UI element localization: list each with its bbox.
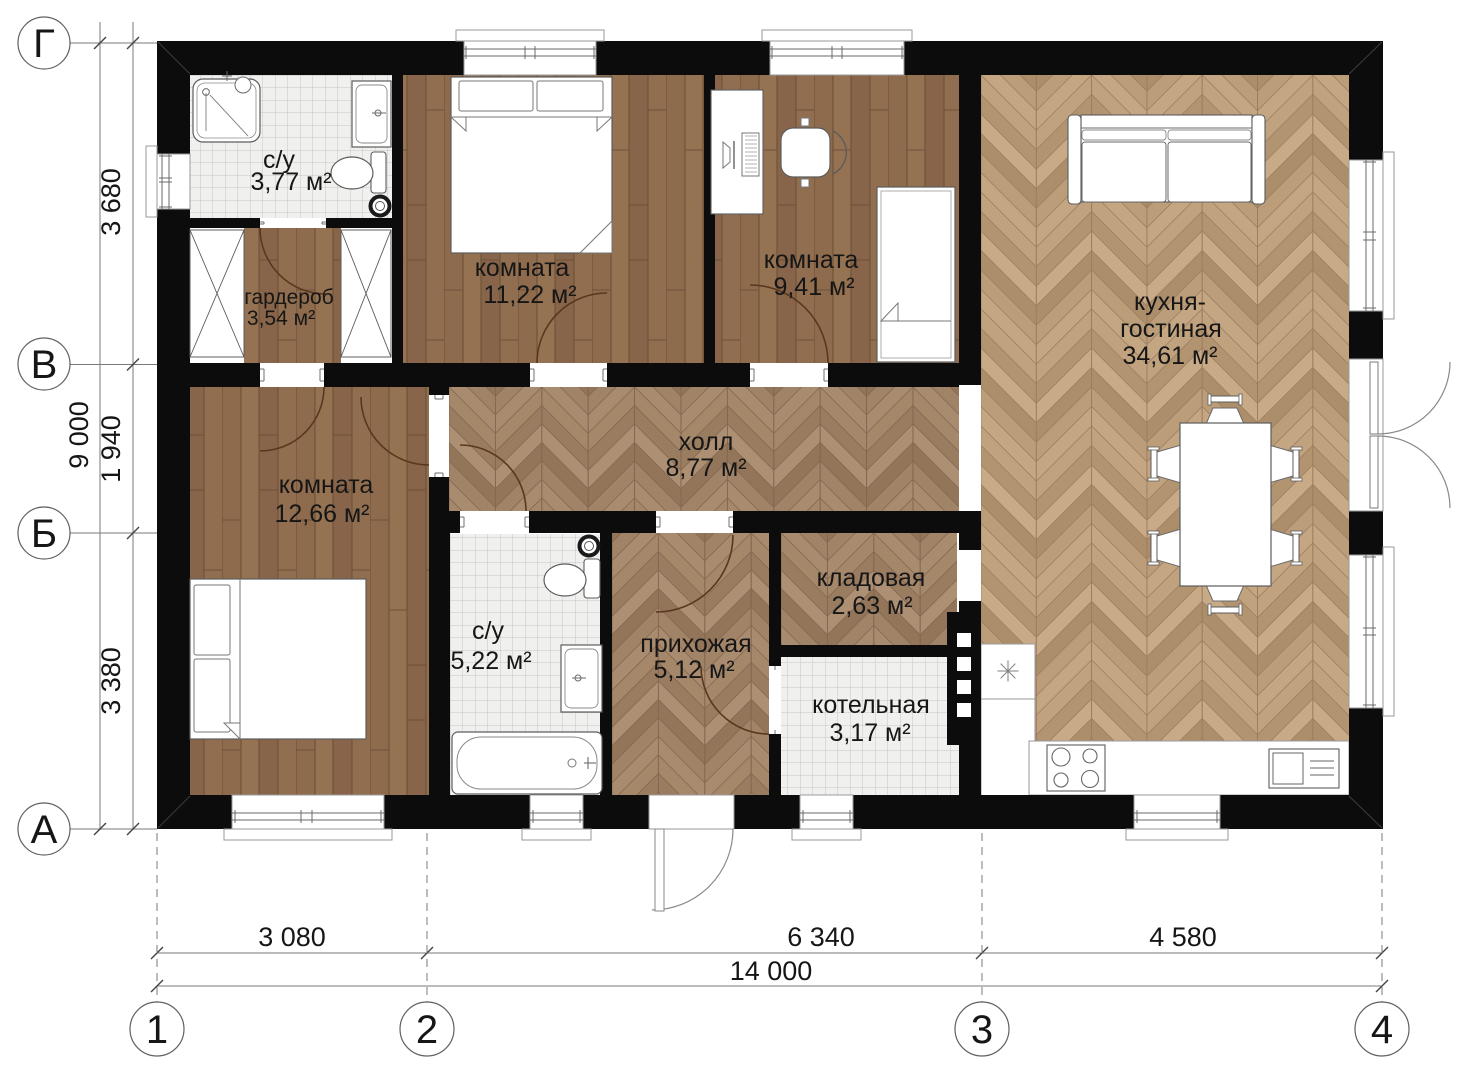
svg-text:34,61 м²: 34,61 м² bbox=[1122, 342, 1217, 370]
svg-text:3 380: 3 380 bbox=[96, 647, 126, 715]
svg-text:12,66 м²: 12,66 м² bbox=[274, 500, 369, 528]
svg-text:2,63 м²: 2,63 м² bbox=[831, 592, 912, 620]
svg-text:комната: комната bbox=[475, 254, 570, 282]
svg-text:1: 1 bbox=[146, 1008, 168, 1052]
svg-text:гардероб: гардероб bbox=[244, 286, 333, 309]
svg-text:с/у: с/у bbox=[472, 617, 504, 645]
svg-text:6 340: 6 340 bbox=[787, 922, 855, 952]
svg-text:4 580: 4 580 bbox=[1149, 922, 1217, 952]
svg-text:В: В bbox=[31, 343, 58, 387]
svg-text:кухня-: кухня- bbox=[1134, 288, 1206, 316]
svg-text:9,41 м²: 9,41 м² bbox=[773, 273, 854, 301]
svg-text:3,77 м²: 3,77 м² bbox=[250, 168, 331, 196]
svg-text:гостиная: гостиная bbox=[1120, 315, 1222, 343]
svg-text:холл: холл bbox=[679, 428, 734, 456]
svg-text:8,77 м²: 8,77 м² bbox=[665, 454, 746, 482]
svg-text:3,54 м²: 3,54 м² bbox=[247, 307, 315, 330]
svg-text:2: 2 bbox=[416, 1008, 438, 1052]
svg-text:9 000: 9 000 bbox=[64, 401, 94, 469]
svg-text:3 080: 3 080 bbox=[258, 922, 326, 952]
svg-text:прихожая: прихожая bbox=[640, 630, 751, 658]
svg-text:комната: комната bbox=[764, 246, 859, 274]
svg-text:3 680: 3 680 bbox=[96, 168, 126, 236]
svg-text:А: А bbox=[31, 808, 58, 852]
svg-text:3,17 м²: 3,17 м² bbox=[829, 719, 910, 747]
svg-text:5,12 м²: 5,12 м² bbox=[653, 656, 734, 684]
svg-text:5,22 м²: 5,22 м² bbox=[450, 647, 531, 675]
svg-text:Г: Г bbox=[33, 22, 55, 66]
svg-text:11,22 м²: 11,22 м² bbox=[483, 281, 576, 309]
svg-text:кладовая: кладовая bbox=[817, 564, 926, 592]
svg-text:3: 3 bbox=[971, 1008, 993, 1052]
svg-text:котельная: котельная bbox=[812, 691, 930, 719]
svg-text:4: 4 bbox=[1371, 1008, 1393, 1052]
svg-text:1 940: 1 940 bbox=[96, 415, 126, 483]
svg-text:14 000: 14 000 bbox=[730, 956, 813, 986]
svg-text:Б: Б bbox=[31, 512, 57, 556]
svg-text:комната: комната bbox=[279, 471, 374, 499]
